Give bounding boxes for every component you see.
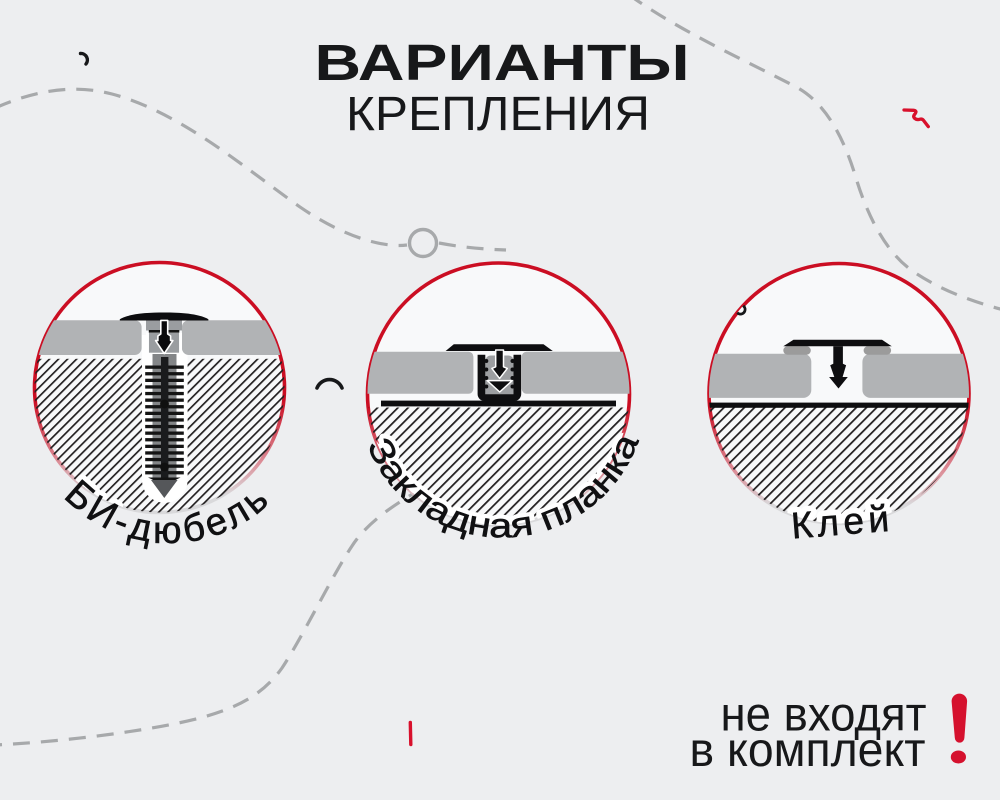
svg-text:Клей: Клей	[790, 498, 895, 547]
svg-text:в комплект: в комплект	[690, 724, 926, 777]
svg-text:КРЕПЛЕНИЯ: КРЕПЛЕНИЯ	[346, 88, 650, 141]
svg-text:ВАРИАНТЫ: ВАРИАНТЫ	[315, 34, 690, 91]
